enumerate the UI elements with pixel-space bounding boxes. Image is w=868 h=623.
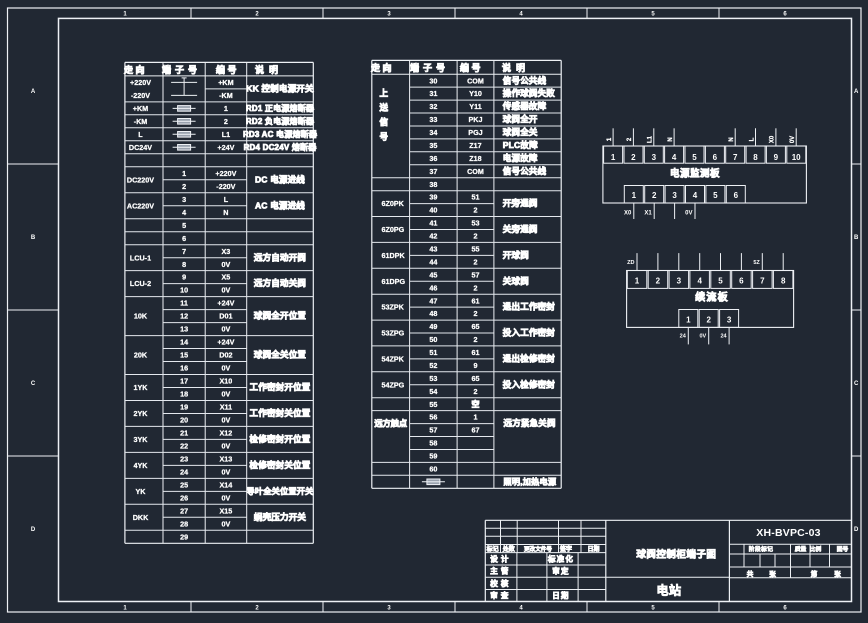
- svg-text:0V: 0V: [222, 442, 231, 451]
- svg-text:53ZPG: 53ZPG: [382, 329, 405, 338]
- svg-text:9: 9: [474, 361, 478, 370]
- svg-text:L: L: [749, 137, 755, 141]
- svg-text:35: 35: [429, 141, 437, 150]
- svg-text:AC 电源进线: AC 电源进线: [255, 200, 305, 210]
- svg-text:47: 47: [429, 296, 437, 305]
- svg-text:1: 1: [632, 191, 637, 200]
- svg-text:39: 39: [429, 193, 437, 202]
- svg-text:12: 12: [180, 312, 188, 321]
- svg-text:远方紧急关阀: 远方紧急关阀: [504, 418, 556, 428]
- svg-text:2: 2: [474, 309, 478, 318]
- svg-text:KK 控制电源开关: KK 控制电源开关: [246, 84, 314, 94]
- svg-text:RD1 正电源熔断器: RD1 正电源熔断器: [246, 103, 315, 113]
- svg-text:关球阀: 关球阀: [503, 276, 529, 286]
- svg-text:2: 2: [656, 276, 661, 285]
- svg-text:签字: 签字: [559, 545, 572, 553]
- svg-text:54: 54: [429, 387, 437, 396]
- svg-text:14: 14: [180, 338, 188, 347]
- svg-text:10: 10: [180, 286, 188, 295]
- svg-text:B: B: [31, 235, 36, 241]
- svg-text:7: 7: [760, 276, 765, 285]
- svg-text:0V: 0V: [790, 136, 796, 143]
- svg-text:YK: YK: [136, 487, 147, 496]
- svg-text:处数: 处数: [502, 545, 516, 553]
- svg-text:0V: 0V: [222, 325, 231, 334]
- svg-text:7: 7: [733, 153, 738, 162]
- svg-text:6: 6: [713, 153, 718, 162]
- svg-text:54ZPG: 54ZPG: [382, 380, 405, 389]
- svg-text:61DPG: 61DPG: [382, 277, 406, 286]
- svg-text:1YK: 1YK: [134, 383, 149, 392]
- svg-text:2: 2: [182, 182, 186, 191]
- svg-text:2: 2: [474, 283, 478, 292]
- svg-text:ZD: ZD: [627, 260, 634, 266]
- svg-text:3: 3: [652, 153, 657, 162]
- svg-text:主管: 主管: [490, 566, 511, 576]
- svg-text:RD3 AC 电源熔断器: RD3 AC 电源熔断器: [243, 129, 318, 139]
- svg-text:审查: 审查: [490, 590, 511, 600]
- svg-text:0V: 0V: [222, 416, 231, 425]
- svg-text:D: D: [854, 527, 859, 533]
- svg-text:球阀全关位置: 球阀全关位置: [254, 350, 307, 360]
- svg-text:走向: 走向: [370, 62, 394, 73]
- svg-text:31: 31: [429, 89, 437, 98]
- svg-text:说明: 说明: [502, 62, 530, 73]
- svg-text:15: 15: [180, 351, 188, 360]
- svg-text:RD4 DC24V 熔断器: RD4 DC24V 熔断器: [244, 142, 318, 152]
- svg-text:+220V: +220V: [215, 169, 236, 178]
- svg-text:X11: X11: [220, 403, 232, 412]
- svg-text:32: 32: [429, 102, 437, 111]
- svg-text:4: 4: [697, 276, 702, 285]
- svg-text:电站: 电站: [656, 583, 681, 598]
- svg-text:XH-BVPC-03: XH-BVPC-03: [756, 527, 820, 539]
- svg-text:8: 8: [753, 153, 758, 162]
- svg-text:0V: 0V: [685, 210, 692, 216]
- svg-text:2: 2: [474, 335, 478, 344]
- svg-text:8: 8: [182, 260, 186, 269]
- svg-text:3: 3: [182, 195, 186, 204]
- svg-text:Z17: Z17: [469, 141, 481, 150]
- svg-text:4: 4: [672, 153, 677, 162]
- svg-text:Y10: Y10: [469, 89, 482, 98]
- svg-text:16: 16: [180, 364, 188, 373]
- svg-text:2: 2: [474, 387, 478, 396]
- svg-text:N: N: [223, 208, 228, 217]
- svg-text:球阀全关: 球阀全关: [503, 127, 538, 137]
- svg-text:RD2 负电源熔断器: RD2 负电源熔断器: [246, 116, 315, 126]
- svg-text:PLC故障: PLC故障: [503, 140, 538, 150]
- svg-text:质量: 质量: [795, 545, 807, 553]
- svg-text:LCU-2: LCU-2: [130, 279, 151, 288]
- svg-text:比例: 比例: [810, 545, 822, 553]
- svg-text:L1: L1: [222, 130, 230, 139]
- svg-text:29: 29: [180, 532, 188, 541]
- svg-text:23: 23: [180, 455, 188, 464]
- svg-text:0V: 0V: [222, 468, 231, 477]
- svg-text:55: 55: [472, 245, 480, 254]
- svg-text:48: 48: [429, 309, 437, 318]
- svg-text:远方自动开阀: 远方自动开阀: [254, 252, 306, 262]
- svg-text:1: 1: [686, 315, 691, 324]
- svg-text:X13: X13: [220, 455, 233, 464]
- svg-text:0V: 0V: [222, 390, 231, 399]
- svg-text:第: 第: [811, 569, 818, 578]
- svg-text:10: 10: [792, 153, 801, 162]
- svg-text:28: 28: [180, 519, 188, 528]
- svg-text:1: 1: [611, 153, 616, 162]
- svg-text:2: 2: [652, 191, 657, 200]
- svg-text:信号公共线: 信号公共线: [503, 166, 547, 176]
- svg-text:Y11: Y11: [469, 102, 481, 111]
- svg-text:2: 2: [631, 153, 636, 162]
- svg-text:18: 18: [180, 390, 188, 399]
- svg-text:45: 45: [429, 270, 437, 279]
- svg-text:4: 4: [182, 208, 186, 217]
- svg-text:13: 13: [180, 325, 188, 334]
- svg-text:X10: X10: [220, 377, 233, 386]
- svg-text:走向: 走向: [123, 64, 147, 75]
- svg-text:照明,加热电源: 照明,加热电源: [504, 476, 557, 486]
- svg-text:10K: 10K: [134, 312, 148, 321]
- svg-text:6Z0PK: 6Z0PK: [382, 199, 405, 208]
- svg-text:L: L: [224, 195, 229, 204]
- svg-text:球阀全开位置: 球阀全开位置: [254, 311, 307, 321]
- svg-text:开球阀: 开球阀: [503, 250, 529, 260]
- svg-text:编号: 编号: [216, 64, 239, 75]
- svg-text:11: 11: [180, 299, 188, 308]
- svg-text:17: 17: [180, 377, 188, 386]
- svg-text:61: 61: [472, 348, 480, 357]
- svg-text:远方触点: 远方触点: [374, 418, 408, 428]
- svg-text:球阀控制柜端子图: 球阀控制柜端子图: [636, 549, 716, 561]
- svg-text:0V: 0V: [222, 286, 231, 295]
- svg-text:+KM: +KM: [218, 78, 233, 87]
- svg-text:43: 43: [429, 245, 437, 254]
- svg-text:61DPK: 61DPK: [382, 251, 406, 260]
- svg-text:57: 57: [472, 270, 480, 279]
- svg-text:导叶全关位置开关: 导叶全关位置开关: [246, 486, 314, 496]
- svg-text:49: 49: [429, 322, 437, 331]
- svg-text:58: 58: [429, 439, 437, 448]
- svg-text:-KM: -KM: [219, 91, 233, 100]
- svg-text:46: 46: [429, 283, 437, 292]
- svg-text:号: 号: [379, 132, 388, 142]
- svg-text:0V: 0V: [222, 493, 231, 502]
- svg-text:N: N: [729, 137, 735, 141]
- svg-text:DKK: DKK: [133, 513, 149, 522]
- svg-text:65: 65: [472, 322, 480, 331]
- svg-text:投入检修密封: 投入检修密封: [503, 379, 556, 389]
- svg-text:X0: X0: [624, 210, 632, 216]
- svg-text:COM: COM: [467, 76, 484, 85]
- svg-text:20K: 20K: [134, 351, 148, 360]
- svg-text:38: 38: [429, 180, 437, 189]
- svg-text:工作密封开位置: 工作密封开位置: [250, 382, 311, 392]
- svg-text:标准化: 标准化: [547, 553, 574, 563]
- svg-text:24: 24: [720, 334, 727, 340]
- svg-text:22: 22: [180, 442, 188, 451]
- svg-text:3: 3: [677, 276, 682, 285]
- svg-text:1: 1: [635, 276, 640, 285]
- svg-text:日期: 日期: [552, 590, 569, 600]
- svg-text:3YK: 3YK: [134, 435, 149, 444]
- svg-text:2: 2: [474, 257, 478, 266]
- svg-text:0V: 0V: [222, 260, 231, 269]
- svg-text:5Z: 5Z: [753, 260, 760, 266]
- svg-text:53: 53: [472, 219, 480, 228]
- svg-text:55: 55: [429, 400, 437, 409]
- svg-text:编号: 编号: [460, 62, 483, 73]
- svg-text:端子号: 端子号: [162, 64, 201, 75]
- svg-text:67: 67: [472, 426, 480, 435]
- svg-text:操作球阀失败: 操作球阀失败: [503, 88, 556, 98]
- svg-text:2YK: 2YK: [134, 409, 149, 418]
- svg-text:37: 37: [429, 167, 437, 176]
- svg-text:53: 53: [429, 374, 437, 383]
- svg-text:40: 40: [429, 206, 437, 215]
- svg-text:日期: 日期: [587, 545, 599, 553]
- svg-text:X1: X1: [644, 210, 652, 216]
- svg-text:0V: 0V: [222, 519, 231, 528]
- svg-text:44: 44: [429, 257, 437, 266]
- svg-text:X3: X3: [222, 247, 231, 256]
- svg-text:36: 36: [429, 154, 437, 163]
- svg-text:张: 张: [769, 569, 776, 578]
- svg-text:+24V: +24V: [217, 299, 234, 308]
- svg-text:张: 张: [834, 569, 841, 578]
- svg-text:X12: X12: [220, 429, 233, 438]
- svg-text:51: 51: [429, 348, 437, 357]
- svg-text:5: 5: [718, 276, 723, 285]
- svg-text:DC220V: DC220V: [127, 175, 154, 184]
- svg-text:C: C: [854, 381, 859, 387]
- svg-text:9: 9: [774, 153, 779, 162]
- svg-text:2: 2: [474, 206, 478, 215]
- svg-text:投入工作密封: 投入工作密封: [503, 328, 556, 338]
- svg-text:电源监测板: 电源监测板: [670, 167, 720, 179]
- svg-text:D01: D01: [219, 312, 232, 321]
- svg-text:退出工作密封: 退出工作密封: [503, 302, 556, 312]
- svg-text:42: 42: [429, 232, 437, 241]
- svg-text:上: 上: [379, 88, 388, 98]
- svg-text:LCU-1: LCU-1: [130, 253, 151, 262]
- svg-text:PKJ: PKJ: [469, 115, 483, 124]
- svg-text:D02: D02: [219, 351, 232, 360]
- svg-text:X0: X0: [770, 135, 776, 143]
- svg-text:6: 6: [734, 191, 739, 200]
- svg-text:0V: 0V: [222, 364, 231, 373]
- svg-text:8: 8: [781, 276, 786, 285]
- svg-text:共: 共: [747, 569, 754, 578]
- svg-text:阶段标记: 阶段标记: [749, 545, 773, 553]
- svg-text:X5: X5: [222, 273, 231, 282]
- svg-text:L: L: [138, 130, 143, 139]
- svg-text:传感器故障: 传感器故障: [502, 101, 547, 111]
- svg-text:59: 59: [429, 452, 437, 461]
- svg-text:60: 60: [429, 465, 437, 474]
- svg-text:65: 65: [472, 374, 480, 383]
- svg-text:24: 24: [180, 468, 188, 477]
- svg-text:AC220V: AC220V: [127, 201, 154, 210]
- svg-text:4: 4: [693, 191, 698, 200]
- svg-text:1: 1: [474, 413, 478, 422]
- svg-text:端子号: 端子号: [410, 62, 449, 73]
- svg-text:更改文件号: 更改文件号: [524, 545, 552, 553]
- svg-text:61: 61: [472, 296, 480, 305]
- svg-text:B: B: [854, 235, 859, 241]
- svg-text:3: 3: [727, 315, 732, 324]
- svg-text:+220V: +220V: [130, 78, 151, 87]
- svg-text:球阀全开: 球阀全开: [503, 114, 538, 124]
- svg-text:21: 21: [180, 429, 188, 438]
- svg-text:电源故障: 电源故障: [503, 153, 538, 163]
- svg-text:25: 25: [180, 481, 188, 490]
- svg-text:退出检修密封: 退出检修密封: [503, 354, 556, 364]
- svg-text:5: 5: [692, 153, 697, 162]
- svg-text:检修密封关位置: 检修密封关位置: [250, 460, 311, 470]
- svg-text:30: 30: [429, 76, 437, 85]
- svg-text:空: 空: [472, 399, 480, 409]
- svg-text:-KM: -KM: [134, 117, 148, 126]
- svg-text:DC24V: DC24V: [129, 143, 152, 152]
- svg-text:信: 信: [379, 117, 388, 127]
- svg-text:Z18: Z18: [469, 154, 481, 163]
- svg-text:A: A: [31, 89, 36, 95]
- svg-text:校核: 校核: [490, 578, 511, 588]
- svg-text:审定: 审定: [552, 566, 569, 576]
- svg-text:X15: X15: [220, 506, 233, 515]
- svg-text:蜗壳压力开关: 蜗壳压力开关: [254, 512, 307, 522]
- svg-text:33: 33: [429, 115, 437, 124]
- svg-text:X14: X14: [220, 481, 233, 490]
- svg-text:20: 20: [180, 416, 188, 425]
- svg-text:34: 34: [429, 128, 437, 137]
- svg-text:5: 5: [713, 191, 718, 200]
- svg-text:D: D: [31, 527, 36, 533]
- svg-text:开旁通阀: 开旁通阀: [503, 198, 538, 208]
- svg-text:19: 19: [180, 403, 188, 412]
- svg-text:说明: 说明: [255, 64, 283, 75]
- svg-text:远方自动关阀: 远方自动关阀: [254, 278, 306, 288]
- svg-text:2: 2: [224, 117, 228, 126]
- svg-text:41: 41: [429, 219, 437, 228]
- svg-text:续流板: 续流板: [695, 291, 729, 304]
- svg-text:工作密封关位置: 工作密封关位置: [250, 408, 311, 418]
- svg-text:1: 1: [182, 169, 186, 178]
- svg-text:7: 7: [182, 247, 186, 256]
- svg-text:6: 6: [182, 234, 186, 243]
- svg-text:+KM: +KM: [133, 104, 148, 113]
- svg-text:50: 50: [429, 335, 437, 344]
- svg-text:6: 6: [739, 276, 744, 285]
- svg-text:9: 9: [182, 273, 186, 282]
- svg-text:COM: COM: [467, 167, 484, 176]
- svg-text:关旁通阀: 关旁通阀: [503, 224, 538, 234]
- svg-text:52: 52: [429, 361, 437, 370]
- svg-text:图号: 图号: [837, 545, 849, 553]
- svg-text:DC 电源进线: DC 电源进线: [255, 174, 305, 184]
- svg-text:C: C: [31, 381, 36, 387]
- svg-text:-220V: -220V: [131, 91, 150, 100]
- svg-text:27: 27: [180, 506, 188, 515]
- svg-text:检修密封开位置: 检修密封开位置: [250, 434, 311, 444]
- svg-text:-220V: -220V: [216, 182, 235, 191]
- svg-text:4YK: 4YK: [134, 461, 149, 470]
- svg-text:设计: 设计: [490, 553, 511, 563]
- svg-text:26: 26: [180, 493, 188, 502]
- svg-text:+24V: +24V: [217, 143, 234, 152]
- svg-text:信号公共线: 信号公共线: [503, 75, 547, 85]
- svg-text:53ZPK: 53ZPK: [382, 303, 405, 312]
- svg-text:PGJ: PGJ: [468, 128, 482, 137]
- svg-text:L1: L1: [648, 135, 654, 143]
- svg-text:A: A: [854, 89, 859, 95]
- svg-text:24: 24: [680, 334, 687, 340]
- svg-text:+24V: +24V: [217, 338, 234, 347]
- svg-text:2: 2: [474, 232, 478, 241]
- svg-text:6Z0PG: 6Z0PG: [382, 225, 405, 234]
- svg-text:56: 56: [429, 413, 437, 422]
- svg-text:1: 1: [224, 104, 228, 113]
- svg-text:57: 57: [429, 426, 437, 435]
- svg-text:N: N: [668, 137, 674, 141]
- svg-text:54ZPK: 54ZPK: [382, 355, 405, 364]
- svg-text:5: 5: [182, 221, 186, 230]
- svg-text:送: 送: [378, 103, 388, 113]
- svg-text:标记: 标记: [486, 545, 499, 553]
- svg-text:0V: 0V: [699, 334, 706, 340]
- svg-text:3: 3: [672, 191, 677, 200]
- svg-text:2: 2: [706, 315, 711, 324]
- svg-text:51: 51: [472, 193, 480, 202]
